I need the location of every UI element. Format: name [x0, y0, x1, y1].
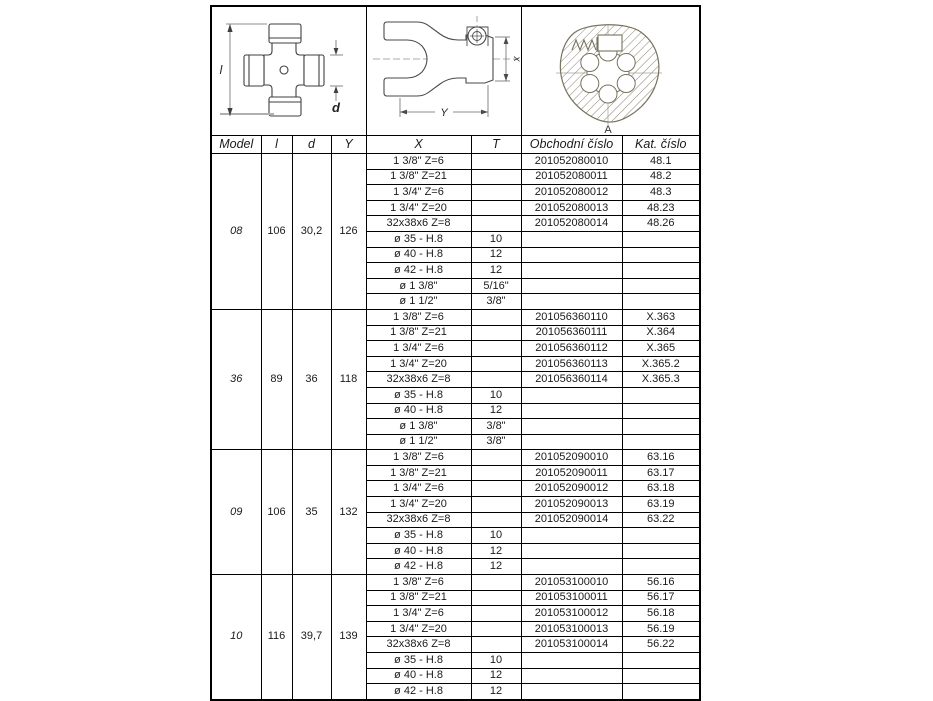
- x-value: 1 3/4" Z=6: [366, 341, 471, 357]
- kat-cislo-value: 56.19: [622, 621, 700, 637]
- kat-cislo-value: [622, 528, 700, 544]
- x-value: 1 3/8" Z=21: [366, 590, 471, 606]
- dim-l-label: l: [220, 63, 223, 77]
- kat-cislo-value: [622, 231, 700, 247]
- kat-cislo-value: X.365.2: [622, 356, 700, 372]
- t-value: [471, 637, 521, 653]
- obchodni-cislo-value: [521, 528, 622, 544]
- t-value: [471, 497, 521, 513]
- column-header-y: Y: [331, 136, 366, 154]
- t-value: [471, 216, 521, 232]
- kat-cislo-value: 48.3: [622, 185, 700, 201]
- kat-cislo-value: [622, 419, 700, 435]
- column-header-model: Model: [211, 136, 261, 154]
- x-value: 1 3/4" Z=6: [366, 481, 471, 497]
- kat-cislo-value: 48.23: [622, 200, 700, 216]
- x-value: ø 35 - H.8: [366, 528, 471, 544]
- kat-cislo-value: 48.1: [622, 154, 700, 170]
- kat-cislo-value: [622, 278, 700, 294]
- obchodni-cislo-value: [521, 684, 622, 700]
- spline-bore-drawing-cell: A: [521, 6, 700, 136]
- obchodni-cislo-value: [521, 434, 622, 450]
- kat-cislo-value: [622, 403, 700, 419]
- dim-d-value: 36: [292, 309, 331, 449]
- yoke-diagram: x Y: [367, 7, 522, 135]
- t-value: 12: [471, 403, 521, 419]
- model-number: 09: [211, 450, 261, 575]
- column-header-d: d: [292, 136, 331, 154]
- t-value: [471, 185, 521, 201]
- model-number: 10: [211, 575, 261, 700]
- kat-cislo-value: [622, 653, 700, 669]
- t-value: 12: [471, 247, 521, 263]
- kat-cislo-value: 56.17: [622, 590, 700, 606]
- kat-cislo-value: 56.22: [622, 637, 700, 653]
- kat-cislo-value: X.363: [622, 309, 700, 325]
- kat-cislo-value: 48.2: [622, 169, 700, 185]
- kat-cislo-value: [622, 668, 700, 684]
- dim-y-value: 126: [331, 154, 366, 310]
- spline-bore-diagram: A: [522, 7, 701, 135]
- obchodni-cislo-value: 201052080010: [521, 154, 622, 170]
- t-value: 12: [471, 559, 521, 575]
- obchodni-cislo-value: [521, 543, 622, 559]
- kat-cislo-value: 63.17: [622, 465, 700, 481]
- x-value: ø 40 - H.8: [366, 403, 471, 419]
- dim-y-value: 132: [331, 450, 366, 575]
- obchodni-cislo-value: 201056360110: [521, 309, 622, 325]
- x-value: 1 3/4" Z=20: [366, 200, 471, 216]
- t-value: [471, 450, 521, 466]
- obchodni-cislo-value: [521, 403, 622, 419]
- x-value: ø 35 - H.8: [366, 231, 471, 247]
- obchodni-cislo-value: [521, 653, 622, 669]
- obchodni-cislo-value: 201056360111: [521, 325, 622, 341]
- t-value: 12: [471, 263, 521, 279]
- spec-table: l d: [210, 5, 701, 701]
- t-value: 3/8": [471, 419, 521, 435]
- t-value: [471, 200, 521, 216]
- t-value: 12: [471, 668, 521, 684]
- x-value: ø 42 - H.8: [366, 263, 471, 279]
- column-header-l: l: [261, 136, 292, 154]
- x-value: 32x38x6 Z=8: [366, 512, 471, 528]
- kat-cislo-value: 63.22: [622, 512, 700, 528]
- t-value: [471, 356, 521, 372]
- kat-cislo-value: X.364: [622, 325, 700, 341]
- x-value: ø 35 - H.8: [366, 387, 471, 403]
- t-value: 12: [471, 684, 521, 700]
- obchodni-cislo-value: 201052090013: [521, 497, 622, 513]
- x-value: ø 1 1/2": [366, 434, 471, 450]
- x-value: ø 40 - H.8: [366, 543, 471, 559]
- drawings-row: l d: [211, 6, 700, 136]
- section-a-label: A: [604, 124, 612, 135]
- t-value: 12: [471, 543, 521, 559]
- x-value: 1 3/4" Z=20: [366, 497, 471, 513]
- obchodni-cislo-value: [521, 263, 622, 279]
- obchodni-cislo-value: 201053100013: [521, 621, 622, 637]
- kat-cislo-value: [622, 294, 700, 310]
- kat-cislo-value: 48.26: [622, 216, 700, 232]
- x-value: 32x38x6 Z=8: [366, 216, 471, 232]
- x-value: ø 42 - H.8: [366, 684, 471, 700]
- t-value: 10: [471, 231, 521, 247]
- t-value: 10: [471, 653, 521, 669]
- obchodni-cislo-value: 201053100011: [521, 590, 622, 606]
- obchodni-cislo-value: [521, 294, 622, 310]
- dim-y-value: 118: [331, 309, 366, 449]
- x-value: 1 3/4" Z=6: [366, 185, 471, 201]
- x-value: ø 40 - H.8: [366, 247, 471, 263]
- obchodni-cislo-value: 201052090012: [521, 481, 622, 497]
- dim-d-value: 35: [292, 450, 331, 575]
- t-value: 10: [471, 387, 521, 403]
- x-value: ø 40 - H.8: [366, 668, 471, 684]
- x-value: 1 3/8" Z=21: [366, 325, 471, 341]
- table-header-row: Model l d Y X T Obchodní číslo Kat. čísl…: [211, 136, 700, 154]
- x-value: ø 1 3/8": [366, 278, 471, 294]
- kat-cislo-value: 56.16: [622, 575, 700, 591]
- t-value: 3/8": [471, 434, 521, 450]
- obchodni-cislo-value: 201056360112: [521, 341, 622, 357]
- x-value: ø 42 - H.8: [366, 559, 471, 575]
- dim-d-label: d: [332, 100, 341, 115]
- kat-cislo-value: 63.18: [622, 481, 700, 497]
- kat-cislo-value: X.365.3: [622, 372, 700, 388]
- kat-cislo-value: [622, 684, 700, 700]
- column-header-x: X: [366, 136, 471, 154]
- yoke-drawing-cell: x Y: [366, 6, 521, 136]
- t-value: [471, 590, 521, 606]
- t-value: 3/8": [471, 294, 521, 310]
- kat-cislo-value: [622, 247, 700, 263]
- obchodni-cislo-value: 201053100012: [521, 606, 622, 622]
- obchodni-cislo-value: 201052090014: [521, 512, 622, 528]
- spec-row: 3689361181 3/8" Z=6201056360110X.363: [211, 309, 700, 325]
- spec-table-body: l d: [211, 6, 700, 700]
- t-value: [471, 341, 521, 357]
- x-value: 1 3/8" Z=6: [366, 309, 471, 325]
- kat-cislo-value: [622, 543, 700, 559]
- column-header-t: T: [471, 136, 521, 154]
- obchodni-cislo-value: [521, 559, 622, 575]
- kat-cislo-value: [622, 434, 700, 450]
- obchodni-cislo-value: 201052080012: [521, 185, 622, 201]
- t-value: [471, 606, 521, 622]
- x-value: ø 1 1/2": [366, 294, 471, 310]
- x-value: 32x38x6 Z=8: [366, 637, 471, 653]
- model-number: 36: [211, 309, 261, 449]
- obchodni-cislo-value: 201056360113: [521, 356, 622, 372]
- t-value: [471, 465, 521, 481]
- column-header-obchodni-cislo: Obchodní číslo: [521, 136, 622, 154]
- kat-cislo-value: 56.18: [622, 606, 700, 622]
- t-value: 10: [471, 528, 521, 544]
- obchodni-cislo-value: [521, 668, 622, 684]
- x-value: ø 1 3/8": [366, 419, 471, 435]
- catalog-sheet: l d: [210, 5, 701, 701]
- dim-l-value: 89: [261, 309, 292, 449]
- dim-y-value: 139: [331, 575, 366, 700]
- x-value: 1 3/4" Z=20: [366, 356, 471, 372]
- page: { "diagrams": { "cross_journal": { "dim_…: [0, 0, 933, 700]
- x-value: 32x38x6 Z=8: [366, 372, 471, 388]
- t-value: [471, 325, 521, 341]
- t-value: [471, 154, 521, 170]
- spec-row: 1011639,71391 3/8" Z=620105310001056.16: [211, 575, 700, 591]
- dim-x-label: x: [511, 56, 522, 63]
- dim-l-value: 106: [261, 154, 292, 310]
- dim-y-label: Y: [440, 107, 448, 119]
- obchodni-cislo-value: 201053100014: [521, 637, 622, 653]
- x-value: 1 3/8" Z=6: [366, 154, 471, 170]
- x-value: 1 3/4" Z=6: [366, 606, 471, 622]
- kat-cislo-value: [622, 387, 700, 403]
- kat-cislo-value: [622, 559, 700, 575]
- t-value: [471, 575, 521, 591]
- spec-row: 09106351321 3/8" Z=620105209001063.16: [211, 450, 700, 466]
- t-value: [471, 309, 521, 325]
- model-number: 08: [211, 154, 261, 310]
- cross-journal-drawing-cell: l d: [211, 6, 366, 136]
- dim-l-value: 106: [261, 450, 292, 575]
- x-value: 1 3/8" Z=6: [366, 450, 471, 466]
- t-value: 5/16": [471, 278, 521, 294]
- column-header-kat-cislo: Kat. číslo: [622, 136, 700, 154]
- obchodni-cislo-value: 201052080013: [521, 200, 622, 216]
- spec-row: 0810630,21261 3/8" Z=620105208001048.1: [211, 154, 700, 170]
- x-value: 1 3/8" Z=6: [366, 575, 471, 591]
- obchodni-cislo-value: [521, 419, 622, 435]
- kat-cislo-value: 63.16: [622, 450, 700, 466]
- obchodni-cislo-value: 201052090011: [521, 465, 622, 481]
- x-value: 1 3/8" Z=21: [366, 465, 471, 481]
- x-value: 1 3/8" Z=21: [366, 169, 471, 185]
- obchodni-cislo-value: [521, 387, 622, 403]
- dim-d-value: 30,2: [292, 154, 331, 310]
- x-value: 1 3/4" Z=20: [366, 621, 471, 637]
- obchodni-cislo-value: [521, 247, 622, 263]
- kat-cislo-value: [622, 263, 700, 279]
- obchodni-cislo-value: [521, 278, 622, 294]
- x-value: ø 35 - H.8: [366, 653, 471, 669]
- dim-d-value: 39,7: [292, 575, 331, 700]
- obchodni-cislo-value: 201056360114: [521, 372, 622, 388]
- cross-journal-diagram: l d: [212, 7, 366, 135]
- dim-l-value: 116: [261, 575, 292, 700]
- obchodni-cislo-value: 201053100010: [521, 575, 622, 591]
- t-value: [471, 481, 521, 497]
- t-value: [471, 372, 521, 388]
- obchodni-cislo-value: 201052080011: [521, 169, 622, 185]
- t-value: [471, 169, 521, 185]
- t-value: [471, 512, 521, 528]
- obchodni-cislo-value: 201052090010: [521, 450, 622, 466]
- kat-cislo-value: 63.19: [622, 497, 700, 513]
- t-value: [471, 621, 521, 637]
- obchodni-cislo-value: [521, 231, 622, 247]
- obchodni-cislo-value: 201052080014: [521, 216, 622, 232]
- kat-cislo-value: X.365: [622, 341, 700, 357]
